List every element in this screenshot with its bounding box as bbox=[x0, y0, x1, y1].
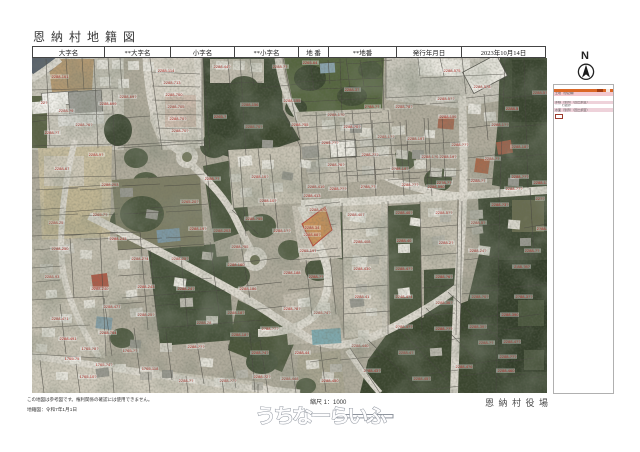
svg-text:うちなーらいふ: うちなーらいふ bbox=[255, 405, 387, 427]
